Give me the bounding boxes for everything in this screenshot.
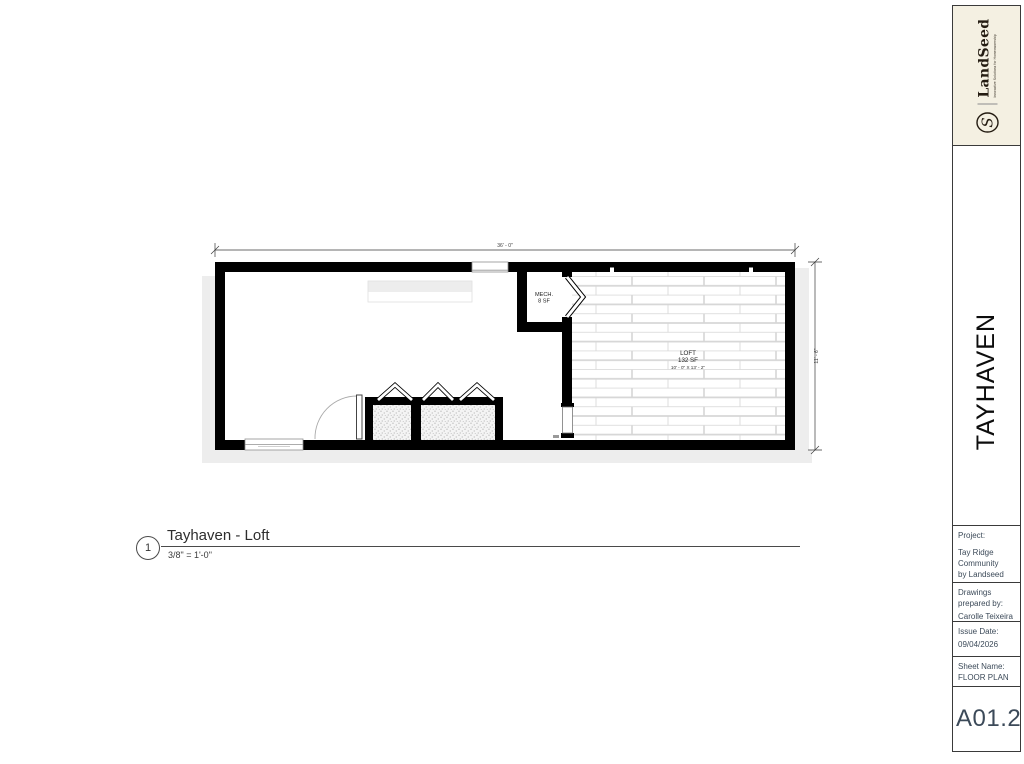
mech-room-area: 8 SF (538, 299, 550, 305)
logo-divider (977, 103, 997, 104)
project-line-3: by Landseed (958, 569, 1016, 580)
issue-date-label: Issue Date: (958, 626, 1016, 637)
loft-room-name: LOFT (680, 350, 696, 357)
prepared-label-2: prepared by: (958, 598, 1016, 609)
sheet-name-value: FLOOR PLAN (958, 672, 1016, 683)
logo-cell: S LandSeed Innovative Solutions for Home… (953, 6, 1020, 146)
brand-tagline: Innovative Solutions for Homeownership (993, 34, 996, 97)
window-bottom (245, 439, 303, 450)
prepared-by-cell: Drawings prepared by: Carolle Teixeira (953, 583, 1020, 622)
door-swing-arc (315, 396, 357, 439)
swing-door (315, 395, 362, 439)
open-to-below-outline (368, 281, 472, 302)
sheet-name-cell: Sheet Name: FLOOR PLAN (953, 657, 1020, 687)
closet-1-stipple-floor (373, 405, 411, 440)
issue-date-value: 09/04/2026 (958, 639, 1016, 650)
loft-plank-floor (572, 272, 785, 440)
detail-number: 1 (145, 542, 151, 554)
issue-date-cell: Issue Date: 09/04/2026 (953, 622, 1020, 657)
loft-door-frame (553, 403, 574, 438)
dimension-top: 36' - 0" (211, 243, 799, 257)
project-cell: Project: Tay Ridge Community by Landseed (953, 526, 1020, 583)
view-scale: 3/8" = 1'-0" (168, 550, 212, 560)
mech-room-name: MECH. (535, 292, 553, 298)
view-title: Tayhaven - Loft (167, 527, 270, 544)
dimension-right: 11' - 6" (808, 258, 822, 454)
project-label: Project: (958, 530, 1016, 541)
wall-joint (610, 268, 614, 273)
sheet-name-label: Sheet Name: (958, 661, 1016, 672)
mech-room-label: MECH. 8 SF (535, 292, 553, 305)
drawing-sheet: 36' - 0" 11' - 6" MECH. 8 SF LOFT 132 SF… (0, 0, 1024, 764)
prepared-label-1: Drawings (958, 587, 1016, 598)
dimension-top-text: 36' - 0" (497, 243, 513, 249)
project-line-1: Tay Ridge (958, 547, 1016, 558)
project-name-cell: TAYHAVEN (953, 146, 1020, 526)
project-name-vertical: TAYHAVEN (972, 313, 1001, 450)
sheet-number: A01.2 (953, 705, 1021, 733)
loft-room-area: 132 SF (678, 357, 698, 364)
dimension-right-text: 11' - 6" (814, 348, 820, 363)
door-leaf (357, 395, 363, 439)
sheet-number-cell: A01.2 (953, 687, 1020, 751)
prepared-name: Carolle Teixeira (958, 611, 1016, 622)
project-line-2: Community (958, 558, 1016, 569)
detail-number-marker: 1 (136, 536, 160, 560)
window-top (472, 262, 508, 272)
svg-text:S: S (978, 117, 996, 127)
loft-room-dims: 10' - 0" X 13' - 2" (671, 365, 705, 370)
view-title-underline (161, 546, 800, 547)
brand-name: LandSeed (977, 18, 991, 97)
title-block: S LandSeed Innovative Solutions for Home… (952, 5, 1021, 752)
floor-plan-drawing: 36' - 0" 11' - 6" MECH. 8 SF LOFT 132 SF… (200, 230, 840, 480)
wall-joint (749, 268, 753, 273)
closet-2-stipple-floor (421, 405, 495, 440)
landseed-logo-icon: S (975, 110, 999, 134)
